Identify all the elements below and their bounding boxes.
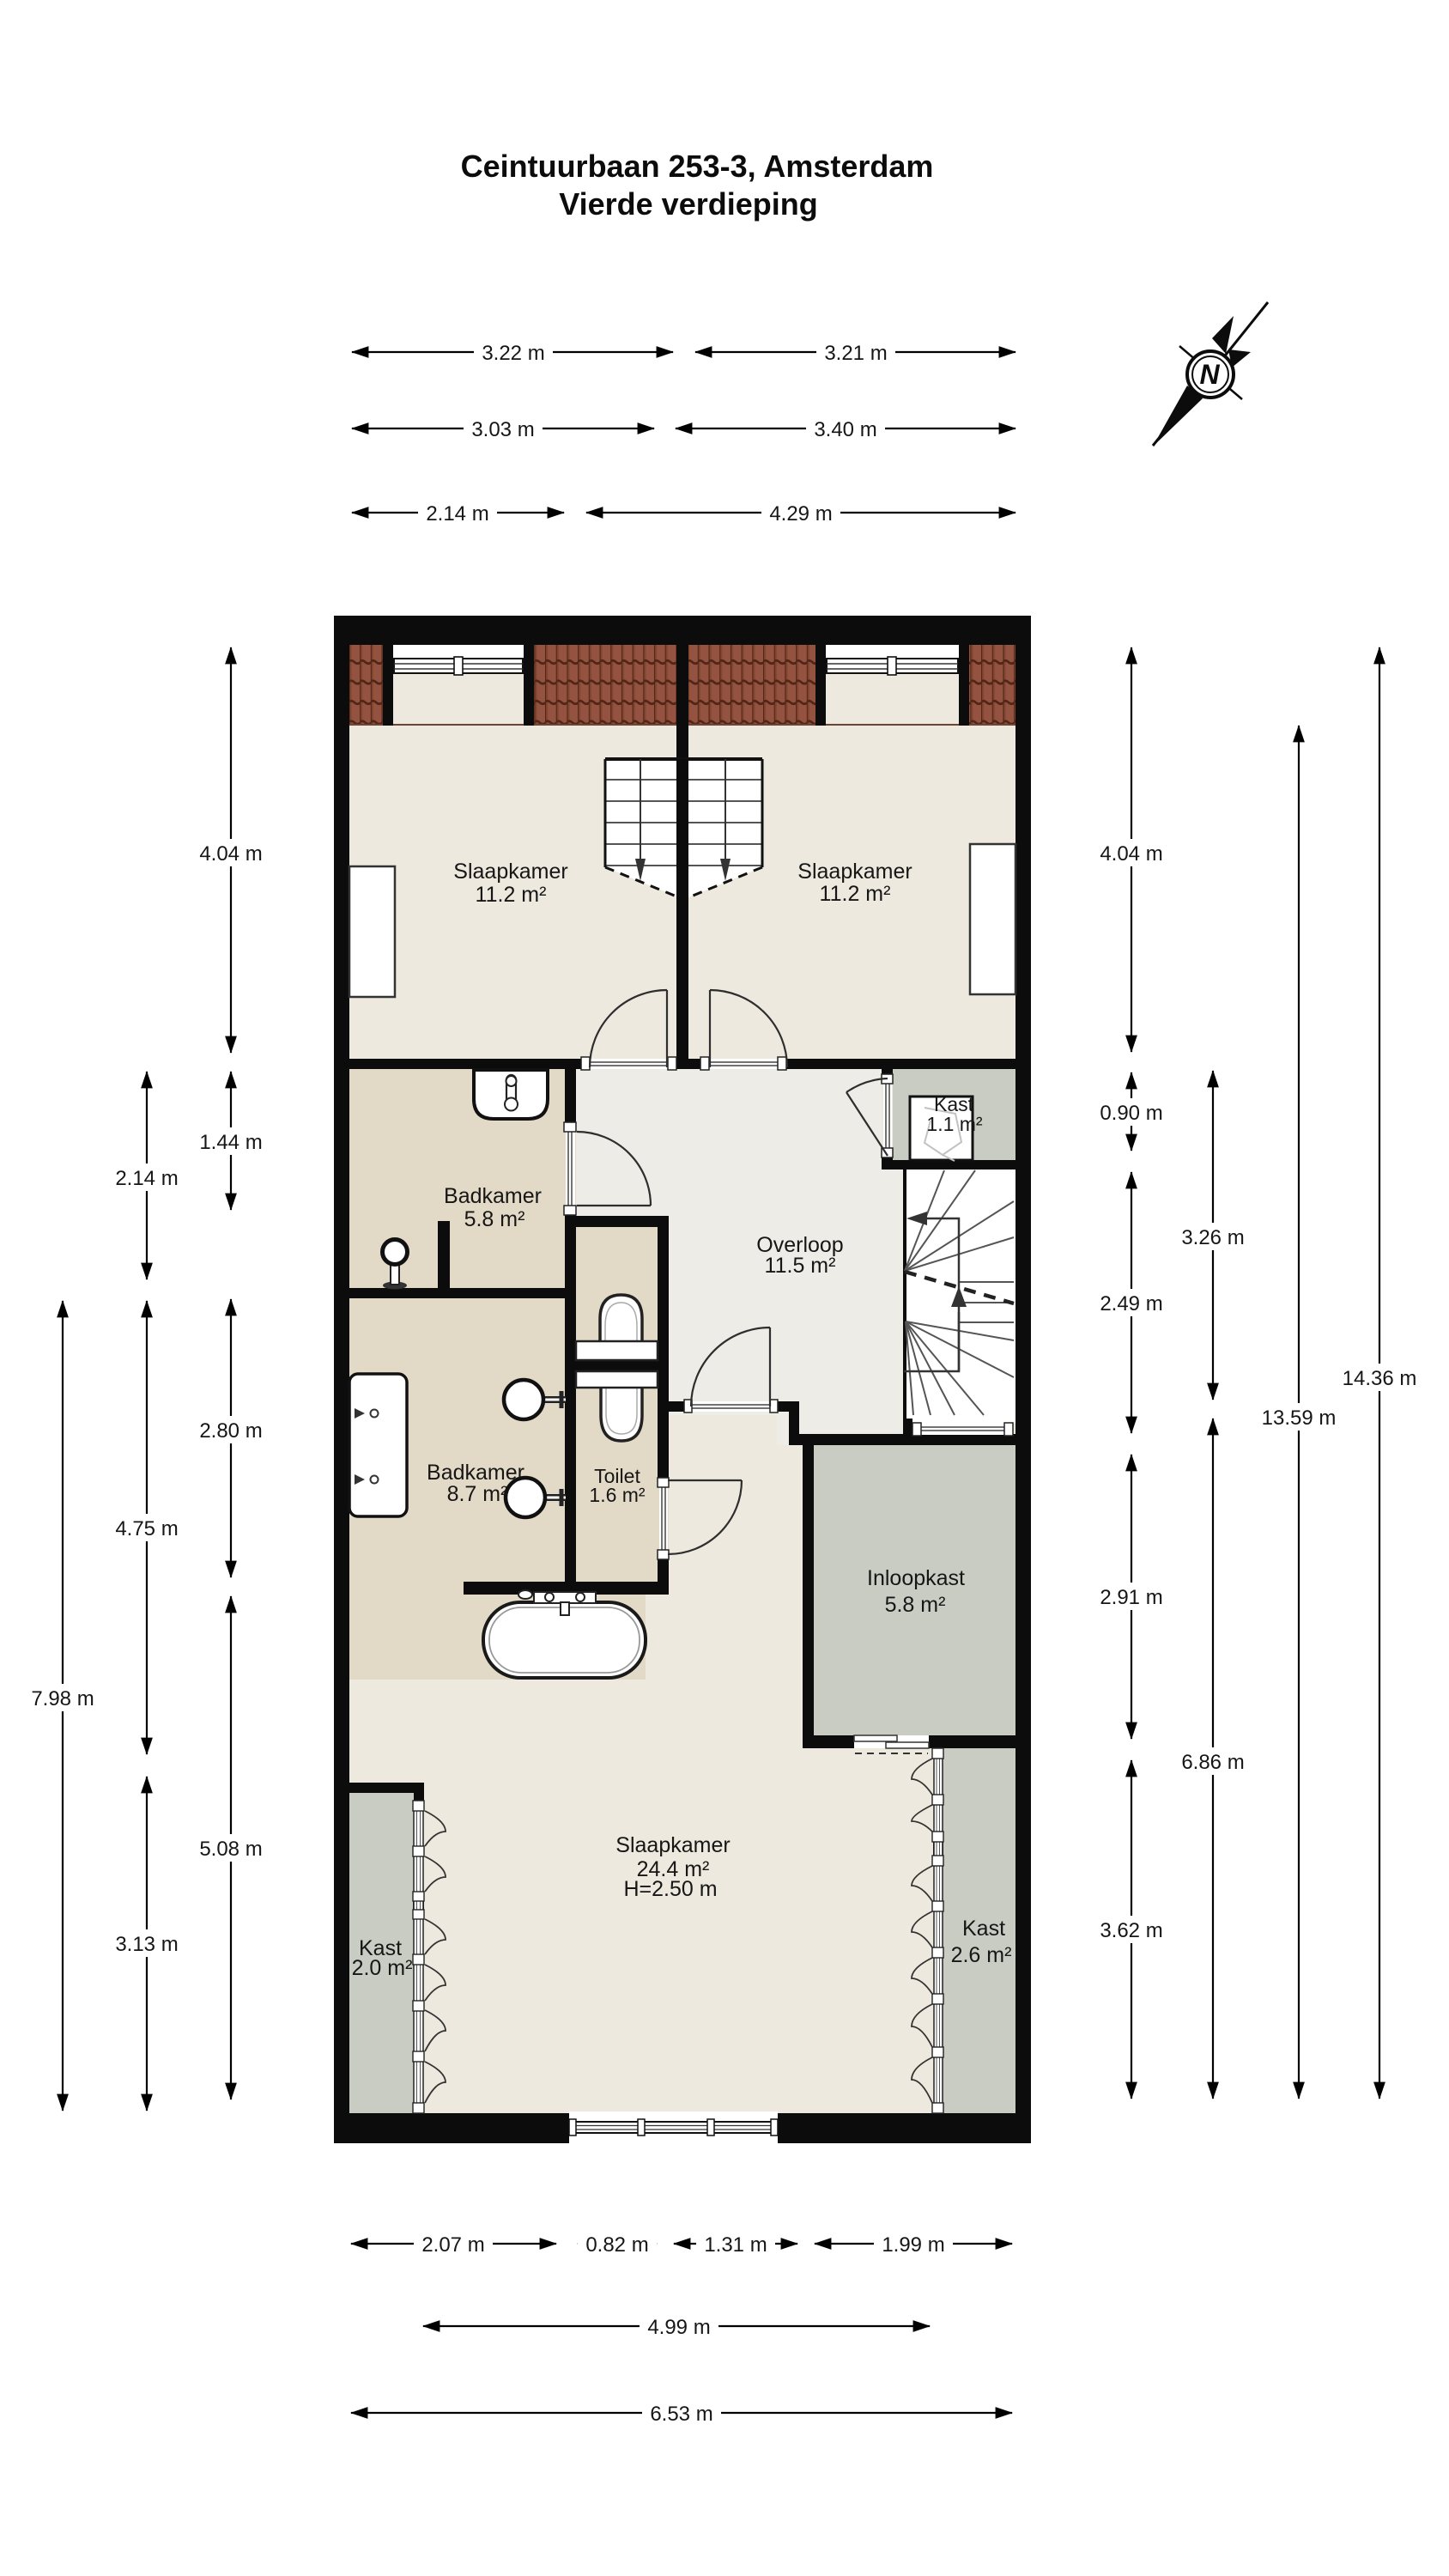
svg-text:11.5 m²: 11.5 m² [765,1254,836,1278]
svg-text:Inloopkast: Inloopkast [867,1566,965,1590]
svg-text:1.44 m: 1.44 m [199,1131,262,1154]
svg-text:11.2 m²: 11.2 m² [820,882,891,906]
svg-text:Slaapkamer: Slaapkamer [453,860,567,884]
svg-text:N: N [1199,359,1220,390]
svg-text:7.98 m: 7.98 m [31,1687,94,1710]
svg-text:0.90 m: 0.90 m [1100,1102,1162,1125]
svg-text:1.1 m²: 1.1 m² [926,1113,983,1135]
svg-text:6.86 m: 6.86 m [1181,1751,1244,1774]
svg-text:3.03 m: 3.03 m [471,418,534,441]
svg-text:2.91 m: 2.91 m [1100,1586,1162,1609]
svg-text:4.04 m: 4.04 m [199,842,262,866]
svg-text:1.31 m: 1.31 m [704,2233,767,2257]
svg-text:2.80 m: 2.80 m [199,1419,262,1443]
svg-text:2.49 m: 2.49 m [1100,1292,1162,1315]
svg-text:1.6 m²: 1.6 m² [589,1484,646,1506]
svg-text:2.14 m: 2.14 m [426,502,488,526]
svg-text:2.6 m²: 2.6 m² [951,1943,1012,1967]
svg-text:Vierde verdieping: Vierde verdieping [559,186,817,222]
svg-text:Slaapkamer: Slaapkamer [615,1833,730,1857]
svg-text:2.0 m²: 2.0 m² [352,1956,413,1980]
svg-text:Badkamer: Badkamer [427,1461,524,1485]
svg-text:5.8 m²: 5.8 m² [885,1593,946,1617]
svg-text:1.99 m: 1.99 m [882,2233,944,2257]
svg-text:4.29 m: 4.29 m [769,502,832,526]
svg-text:3.13 m: 3.13 m [115,1933,178,1956]
svg-text:6.53 m: 6.53 m [650,2403,712,2426]
svg-text:3.26 m: 3.26 m [1181,1226,1244,1249]
svg-text:Slaapkamer: Slaapkamer [797,860,912,884]
svg-text:Ceintuurbaan 253-3, Amsterdam: Ceintuurbaan 253-3, Amsterdam [461,149,934,184]
svg-text:4.99 m: 4.99 m [647,2316,710,2339]
svg-text:Kast: Kast [962,1917,1005,1941]
svg-text:5.08 m: 5.08 m [199,1838,262,1861]
svg-text:3.22 m: 3.22 m [482,342,544,365]
svg-text:13.59 m: 13.59 m [1262,1406,1337,1430]
svg-text:0.82 m: 0.82 m [585,2233,648,2257]
svg-text:4.04 m: 4.04 m [1100,842,1162,866]
svg-text:3.40 m: 3.40 m [814,418,876,441]
svg-text:11.2 m²: 11.2 m² [476,883,547,907]
svg-text:14.36 m: 14.36 m [1343,1367,1417,1390]
svg-text:2.07 m: 2.07 m [421,2233,484,2257]
svg-text:4.75 m: 4.75 m [115,1517,178,1540]
svg-text:H=2.50 m: H=2.50 m [623,1877,717,1901]
svg-text:8.7 m²: 8.7 m² [447,1482,508,1506]
svg-text:3.21 m: 3.21 m [824,342,887,365]
svg-text:2.14 m: 2.14 m [115,1167,178,1190]
svg-text:3.62 m: 3.62 m [1100,1919,1162,1942]
svg-text:Badkamer: Badkamer [444,1184,542,1208]
svg-text:5.8 m²: 5.8 m² [464,1207,525,1231]
